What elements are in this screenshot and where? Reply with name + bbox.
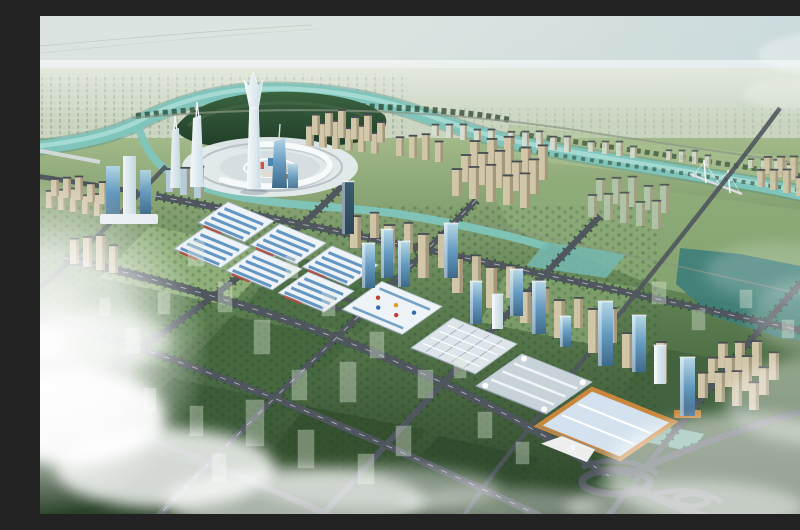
riverfront-row-west-roof — [364, 114, 373, 116]
north-bank-homes-a-roof — [474, 129, 482, 131]
west-glass-tower-c — [140, 170, 151, 215]
ghost-building — [188, 240, 204, 266]
riverfront-row-west-2-roof — [396, 136, 405, 138]
riverfront-row-west-shade — [317, 115, 320, 135]
ghost-residential-rows-shade — [610, 195, 613, 220]
east-residential-cluster-shade — [545, 146, 548, 180]
north-bank-homes-d-roof — [666, 149, 673, 151]
ghost-building — [418, 370, 433, 398]
far-east-cluster-roof — [783, 169, 792, 171]
east-residential-cluster-shade — [510, 176, 513, 205]
mall-sign — [412, 311, 416, 315]
office-tower-highlight — [470, 282, 473, 324]
far-east-cluster-shade — [762, 171, 765, 187]
riverfront-row-west-roof — [338, 109, 347, 111]
ghost-residential-rows-roof — [628, 176, 638, 178]
ghost-building — [692, 310, 705, 330]
far-east-cluster-roof — [757, 169, 766, 171]
southeast-cluster-shade — [722, 373, 725, 402]
ghost-residential-rows-roof — [588, 194, 598, 196]
strip-residential-back-row-roof — [574, 297, 584, 299]
office-tower-highlight — [492, 295, 495, 329]
strip-residential-back-row-shade — [478, 256, 481, 283]
strip-residential-row-roof — [486, 266, 498, 268]
strip-residential-row-shade — [459, 259, 463, 293]
ghost-building — [396, 426, 411, 456]
ghost-building — [340, 362, 356, 402]
north-bank-homes-d-roof — [705, 155, 712, 157]
office-tower-highlight — [654, 346, 657, 384]
masterplan-svg — [40, 16, 800, 514]
far-east-cluster-roof — [770, 169, 779, 171]
southeast-cluster-roof — [735, 341, 746, 343]
riverfront-row-west-2-shade — [414, 136, 417, 158]
north-bank-homes-c-shade — [621, 142, 623, 156]
southeast-cluster-roof — [742, 355, 753, 357]
ghost-building — [298, 430, 314, 468]
office-tower-cap — [632, 315, 647, 317]
plaza-tower-small — [288, 164, 298, 188]
ghost-building — [454, 356, 466, 378]
ghost-building — [370, 332, 384, 358]
office-tower-cap — [444, 223, 459, 225]
plaza-tower-east-spike — [279, 124, 280, 139]
east-residential-cluster-roof — [503, 175, 514, 177]
ghost-building — [652, 282, 666, 304]
north-bank-homes-c-roof — [616, 141, 624, 143]
southeast-cluster-roof — [725, 356, 736, 358]
ghost-residential-rows-roof — [596, 178, 606, 180]
north-bank-homes-a-roof — [460, 124, 468, 126]
north-bank-homes-e-roof — [748, 158, 755, 160]
ghost-building — [516, 442, 529, 464]
hall-pavilion — [580, 379, 586, 385]
strip-residential-row-roof — [384, 224, 396, 226]
ghost-building — [246, 400, 264, 446]
office-tower-cap — [680, 357, 696, 359]
east-residential-cluster-roof — [512, 161, 523, 163]
strip-residential-back-row-shade — [410, 224, 413, 253]
strip-residential-row-shade — [425, 235, 429, 278]
far-east-cluster-roof — [777, 156, 786, 158]
office-tower-cap — [470, 281, 483, 283]
mall-sign — [376, 305, 380, 309]
ghost-building — [478, 412, 492, 438]
office-tower-highlight — [381, 230, 384, 278]
north-bank-homes-b-shade — [569, 137, 571, 152]
riverfront-row-west-2-shade — [440, 142, 443, 162]
north-bank-homes-d-shade — [696, 151, 698, 164]
north-bank-homes-a-shade — [465, 125, 467, 140]
strip-residential-back-row-roof — [404, 222, 414, 224]
mall-sign — [376, 296, 380, 300]
riverfront-row-west-shade — [382, 123, 385, 143]
strip-residential-row-roof — [554, 299, 566, 301]
office-tower-highlight — [680, 358, 684, 416]
ghost-residential-rows-roof — [660, 184, 670, 186]
west-edge-homes-roof — [75, 176, 84, 178]
office-tower-cap — [398, 241, 411, 243]
east-residential-cluster-roof — [538, 144, 549, 146]
strip-residential-row-roof — [418, 233, 430, 235]
southeast-cluster-roof — [732, 370, 743, 372]
ghost-building — [292, 370, 307, 400]
north-bank-homes-a-roof — [432, 124, 440, 126]
north-bank-homes-c-shade — [593, 142, 595, 152]
southeast-cluster-roof — [752, 340, 763, 342]
riverfront-row-west-shade — [356, 118, 359, 140]
east-residential-cluster-roof — [486, 164, 497, 166]
north-bank-homes-b-roof — [550, 136, 558, 138]
office-tower-cap — [342, 181, 355, 183]
north-bank-homes-d-shade — [683, 151, 685, 162]
west-mid-slabs-shade — [187, 169, 190, 195]
north-bank-homes-d-roof — [692, 150, 699, 152]
ghost-residential-rows-roof — [612, 177, 622, 179]
east-residential-cluster-shade — [476, 168, 479, 199]
east-residential-cluster-shade — [536, 160, 539, 194]
east-residential-cluster-shade — [493, 166, 496, 202]
masterplan-render — [40, 16, 800, 514]
office-tower-cap — [510, 269, 524, 271]
ghost-building — [286, 256, 298, 278]
north-bank-homes-c-roof — [588, 141, 596, 143]
riverfront-row-west-2-roof — [409, 135, 418, 137]
north-bank-homes-b-roof — [522, 131, 530, 133]
ghost-residential-rows-shade — [626, 193, 629, 223]
office-tower-highlight — [560, 317, 563, 347]
office-tower-highlight — [398, 242, 401, 287]
north-bank-homes-c-roof — [602, 141, 610, 143]
ghost-residential-rows-shade — [658, 201, 661, 229]
far-east-cluster — [796, 178, 800, 196]
office-tower-cap — [381, 229, 394, 231]
east-residential-cluster-roof — [504, 136, 515, 138]
far-east-cluster-roof — [790, 156, 799, 158]
ghost-residential-rows-shade — [642, 203, 645, 226]
southeast-cluster-roof — [769, 351, 780, 353]
north-bank-homes-d-shade — [709, 156, 711, 166]
strip-residential-row-shade — [527, 292, 531, 323]
plaza-tower-east — [272, 138, 287, 188]
southeast-cluster-roof — [715, 371, 726, 373]
office-tower-cap — [532, 281, 547, 283]
riverfront-row-west-shade — [369, 116, 372, 141]
office-tower-highlight — [444, 224, 448, 278]
east-residential-cluster-roof — [470, 140, 481, 142]
far-east-cluster-shade — [788, 170, 791, 193]
north-bank-homes-a-roof — [488, 129, 496, 131]
north-bank-homes-a-roof — [446, 124, 454, 126]
office-tower-highlight — [342, 182, 345, 234]
strip-residential-row-roof — [656, 341, 668, 343]
riverfront-row-west-shade — [330, 113, 333, 137]
far-east-cluster-shade — [775, 170, 778, 190]
east-residential-cluster-roof — [495, 150, 506, 152]
strip-residential-back-row-shade — [546, 288, 549, 313]
riverfront-row-west-2-roof — [422, 133, 431, 135]
ghost-residential-rows-roof — [644, 185, 654, 187]
office-tower-cap — [598, 301, 614, 303]
ghost-residential-rows-shade — [666, 185, 669, 213]
office-tower-cap — [362, 243, 376, 245]
spire-shadow — [240, 189, 268, 195]
north-bank-homes-b-shade — [555, 137, 557, 150]
central-plaza — [182, 137, 358, 197]
strip-residential-back-row-shade — [580, 299, 583, 328]
hall-pavilion — [482, 383, 488, 389]
ghost-residential-rows-roof — [604, 193, 614, 195]
north-bank-homes-d-roof — [679, 150, 686, 152]
riverfront-row-west-roof — [351, 116, 360, 118]
strip-residential-row-roof — [588, 308, 600, 310]
office-tower-cap — [492, 294, 504, 296]
east-residential-cluster-roof — [520, 172, 531, 174]
east-residential-cluster-roof — [487, 138, 498, 140]
southeast-cluster-shade — [705, 373, 708, 398]
southeast-cluster-roof — [718, 342, 729, 344]
strip-residential-back-row-shade — [614, 309, 617, 343]
riverfront-row-west-shade — [343, 111, 346, 138]
far-east-cluster-roof — [796, 176, 800, 178]
east-residential-cluster-shade — [459, 170, 462, 196]
far-east-cluster-roof — [764, 156, 773, 158]
office-tower-cap — [654, 345, 667, 347]
ghost-building — [218, 282, 232, 312]
riverfront-row-west-roof — [312, 114, 321, 116]
north-bank-homes-b-roof — [508, 131, 516, 133]
office-tower-highlight — [532, 282, 536, 334]
north-bank-homes-b-roof — [536, 130, 544, 132]
strip-residential-back-row-roof — [472, 254, 482, 256]
mall-sign — [394, 303, 398, 307]
ghost-residential-rows-roof — [620, 192, 630, 194]
southeast-cluster-roof — [698, 372, 709, 374]
strip-residential-back-row-shade — [376, 213, 379, 238]
strip-residential-back-row-roof — [506, 265, 516, 267]
southeast-cluster-roof — [708, 357, 719, 359]
north-bank-homes-e-shade — [752, 160, 754, 168]
hall-pavilion — [521, 356, 527, 362]
riverfront-row-west-2-roof — [435, 141, 444, 143]
strip-residential-back-row-roof — [370, 212, 380, 214]
riverfront-row-west-roof — [325, 111, 334, 113]
north-bank-homes-a-shade — [437, 125, 439, 136]
hall-pavilion — [541, 406, 547, 412]
office-tower-highlight — [362, 244, 365, 288]
north-bank-homes-b-shade — [527, 132, 529, 146]
mall-sign — [394, 313, 398, 317]
office-tower-highlight — [598, 302, 602, 366]
ghost-residential-rows-roof — [636, 201, 646, 203]
strip-residential-row-shade — [357, 217, 361, 248]
riverfront-row-west-2-shade — [401, 138, 404, 156]
north-bank-homes-c-shade — [607, 142, 609, 154]
east-residential-cluster-roof — [461, 154, 472, 156]
strip-residential-row-roof — [622, 332, 634, 334]
ghost-residential-rows-roof — [652, 200, 662, 202]
north-bank-homes-d-shade — [670, 151, 672, 160]
riverfront-row-west-2-shade — [427, 135, 430, 160]
east-residential-cluster-roof — [529, 158, 540, 160]
west-mid-slabs-roof — [180, 167, 191, 169]
east-residential-cluster-roof — [452, 168, 463, 170]
ghost-residential-rows-shade — [594, 196, 597, 217]
east-residential-cluster-roof — [478, 152, 489, 154]
north-bank-homes-c-shade — [635, 147, 637, 158]
north-bank-homes-c-roof — [630, 146, 638, 148]
east-residential-cluster-roof — [469, 166, 480, 168]
north-bank-homes-b-roof — [564, 136, 572, 138]
east-residential-cluster-shade — [527, 174, 530, 208]
riverfront-row-west-roof — [377, 121, 386, 123]
east-residential-cluster-roof — [521, 147, 532, 149]
office-tower-highlight — [510, 270, 513, 316]
ghost-building — [322, 292, 335, 316]
office-tower-cap — [560, 316, 572, 318]
office-tower-highlight — [632, 316, 636, 372]
ghost-building — [254, 320, 270, 354]
north-bank-homes-a-shade — [451, 125, 453, 138]
